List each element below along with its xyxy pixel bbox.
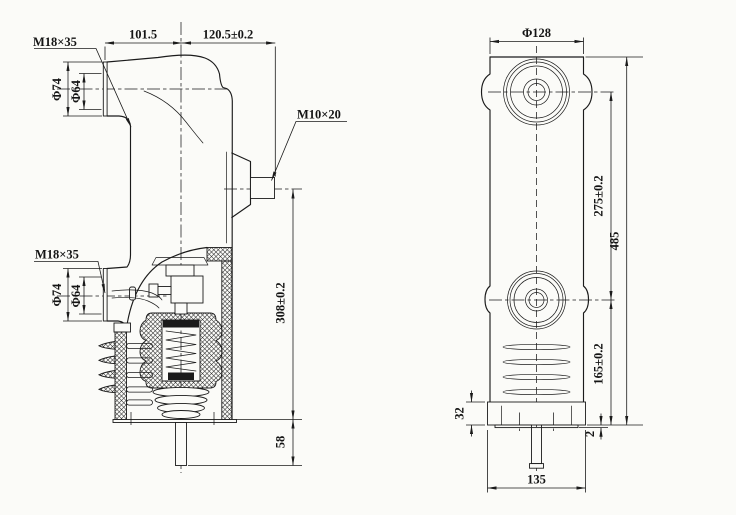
upper-seal [163, 321, 199, 328]
dim-rod-extension: 58 [274, 436, 288, 449]
dim-upper-outer-diameter: Φ74 [50, 77, 64, 101]
housing-left-wall-section [115, 332, 127, 420]
side-terminal-boss [232, 153, 275, 218]
dim-body-width: 120.5±0.2 [203, 28, 254, 42]
dim-flange-height: 32 [453, 407, 467, 420]
dim-overall-height: 485 [608, 232, 622, 251]
flange-lip-left [495, 425, 532, 428]
label-side-terminal-thread: M10×20 [297, 108, 341, 122]
housing-cap-section [207, 248, 232, 262]
right-view-front: Φ128 275±0.2 165±0.2 485 32 2 [453, 26, 644, 493]
dim-terminal-axis-to-base: 308±0.2 [274, 282, 288, 323]
drawing-sheet: 101.5 120.5±0.2 M18×35 Φ74 Φ64 M10×20 M1… [0, 0, 736, 515]
vacuum-interrupter-section [140, 313, 222, 388]
technical-drawing-canvas: 101.5 120.5±0.2 M18×35 Φ74 Φ64 M10×20 M1… [0, 0, 736, 515]
housing-right-wall-section [222, 261, 232, 420]
dim-arm-length: 101.5 [129, 28, 157, 42]
dim-lower-center-to-base: 165±0.2 [592, 343, 606, 384]
label-upper-terminal-thread: M18×35 [33, 35, 77, 49]
mounting-flange [488, 402, 586, 468]
bellows [153, 387, 209, 418]
label-lower-terminal-thread: M18×35 [35, 248, 79, 262]
dim-base-width: 135 [527, 473, 546, 487]
dim-lower-outer-diameter: Φ74 [50, 283, 64, 307]
dim-boss-diameter: Φ128 [522, 26, 551, 40]
operating-rod [176, 423, 187, 466]
front-operating-rod [532, 428, 542, 464]
dim-terminal-center-spacing: 275±0.2 [592, 175, 606, 216]
terminal-assembly [112, 258, 208, 315]
lower-seal [168, 373, 194, 381]
exterior-fins [99, 342, 115, 393]
pole-front-outline [482, 57, 593, 402]
flange-lip-right [542, 425, 579, 428]
left-view-side-section: 101.5 120.5±0.2 M18×35 Φ74 Φ64 M10×20 M1… [33, 22, 347, 473]
dim-lower-inner-diameter: Φ64 [69, 284, 83, 308]
dim-upper-inner-diameter: Φ64 [69, 79, 83, 103]
lower-terminal-end-plate [103, 269, 107, 322]
